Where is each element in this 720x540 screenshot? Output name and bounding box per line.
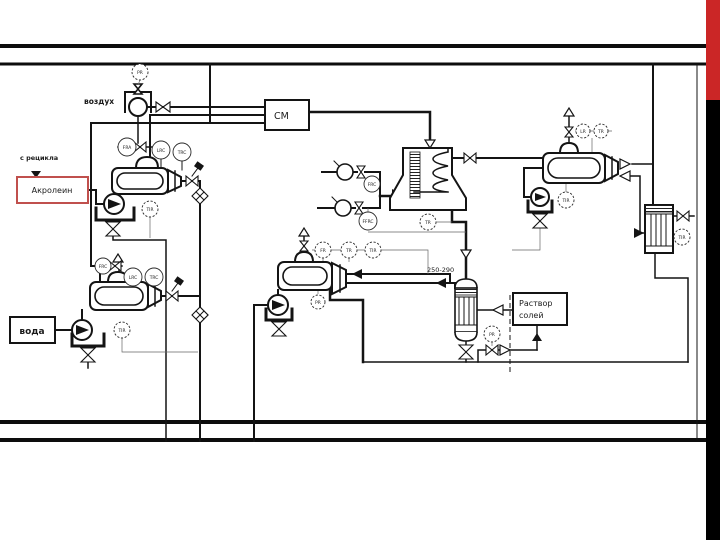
instrument-evapB-frc: FRC: [95, 258, 111, 274]
instrument-sep-tr: TR: [594, 124, 608, 138]
arrow-vent-quench: [299, 228, 309, 236]
slide-canvas: СМ: [0, 0, 720, 540]
instrument-air-pr: PR: [132, 64, 148, 80]
svg-text:TIR: TIR: [561, 198, 569, 204]
instrument-quench-tir: TIR: [365, 242, 381, 258]
instrument-sep-lr: LR: [576, 124, 590, 138]
salt-solution-box: Раствор солей: [513, 293, 567, 325]
instrument-reactor-ffrc: FFRC: [359, 212, 377, 230]
arrow-sep-in: [620, 171, 630, 181]
svg-text:TRC: TRC: [177, 150, 187, 156]
svg-text:PR: PR: [315, 300, 321, 306]
instrument-evapA-tir: TIR: [142, 201, 158, 217]
svg-text:LR: LR: [580, 129, 586, 135]
arrow-sep-out: [620, 159, 630, 169]
svg-text:FR: FR: [320, 248, 326, 254]
evaporator-acrolein: [104, 157, 208, 236]
tube-cooler-column: [455, 279, 477, 359]
instrument-evapB-lrc: LRC: [124, 268, 142, 286]
mixer-box: СМ: [265, 100, 309, 130]
acrolein-box: Акролеин: [17, 177, 88, 203]
svg-text:TRC: TRC: [149, 275, 159, 281]
instrument-evapB-trc: TRC: [145, 268, 163, 286]
svg-text:TIR: TIR: [677, 235, 685, 241]
accent-bar-black: [706, 100, 720, 540]
svg-text:TIR: TIR: [145, 207, 153, 213]
salt-line-valve: [486, 345, 498, 355]
arrow-into-salt-box: [532, 333, 542, 341]
instrument-evapA-trc: TRC: [173, 143, 191, 161]
svg-text:TR: TR: [597, 129, 604, 135]
instrument-salt-pr: PR: [484, 326, 500, 342]
svg-text:FFRC: FFRC: [363, 219, 374, 225]
svg-text:LRC: LRC: [157, 148, 165, 154]
arrow-vent-separator: [564, 108, 574, 116]
svg-text:FRA: FRA: [123, 145, 131, 151]
svg-text:TIR: TIR: [117, 328, 125, 334]
arrow-to-column-bottom: [493, 305, 503, 315]
instrument-sep-tir: TIR: [558, 192, 574, 208]
instrument-evapB-tir: TIR: [114, 322, 130, 338]
arrow-to-quench-1: [352, 269, 362, 279]
instrument-evapA-fra: FRA: [118, 138, 136, 156]
air-label: воздух: [84, 97, 114, 106]
arrow-into-condenser: [634, 228, 644, 238]
water-box: вода: [10, 317, 55, 343]
instrument-evapA-lrc: LRC: [152, 141, 170, 159]
instrument-cond-tir: TIR: [674, 229, 690, 245]
instrument-reactor-tr: TR: [420, 214, 436, 230]
air-compressor: [125, 80, 151, 116]
arrow-salt-line: [500, 345, 510, 355]
arrow-into-reactor: [425, 140, 435, 148]
condenser: [645, 205, 689, 253]
process-flow-diagram: СМ: [0, 0, 720, 540]
water-label: вода: [19, 327, 44, 337]
mixer-label: СМ: [274, 111, 289, 122]
svg-text:TR: TR: [424, 220, 431, 226]
temp-range-label: 250-290: [427, 266, 454, 274]
instrument-quench-pr: PR: [311, 295, 325, 309]
svg-text:TR: TR: [345, 248, 352, 254]
recycle-label: с рецикла: [20, 154, 58, 162]
acrolein-label: Акролеин: [32, 186, 73, 195]
salt-label-1: Раствор: [519, 299, 552, 308]
svg-text:TIR: TIR: [368, 248, 376, 254]
svg-text:FRC: FRC: [368, 182, 376, 188]
salt-label-2: солей: [519, 311, 544, 320]
instrument-reactor-frc: FRC: [364, 176, 380, 192]
quench-vessel: [266, 241, 346, 336]
instrument-quench-fr: FR: [315, 242, 331, 258]
svg-text:LRC: LRC: [129, 275, 137, 281]
arrow-into-column: [461, 250, 471, 258]
svg-text:PR: PR: [489, 332, 495, 338]
svg-text:FRC: FRC: [99, 264, 107, 270]
arrow-to-quench-2: [436, 278, 446, 288]
instrument-quench-tr: TR: [341, 242, 357, 258]
svg-text:PR: PR: [137, 70, 143, 76]
accent-bar-red: [706, 0, 720, 100]
